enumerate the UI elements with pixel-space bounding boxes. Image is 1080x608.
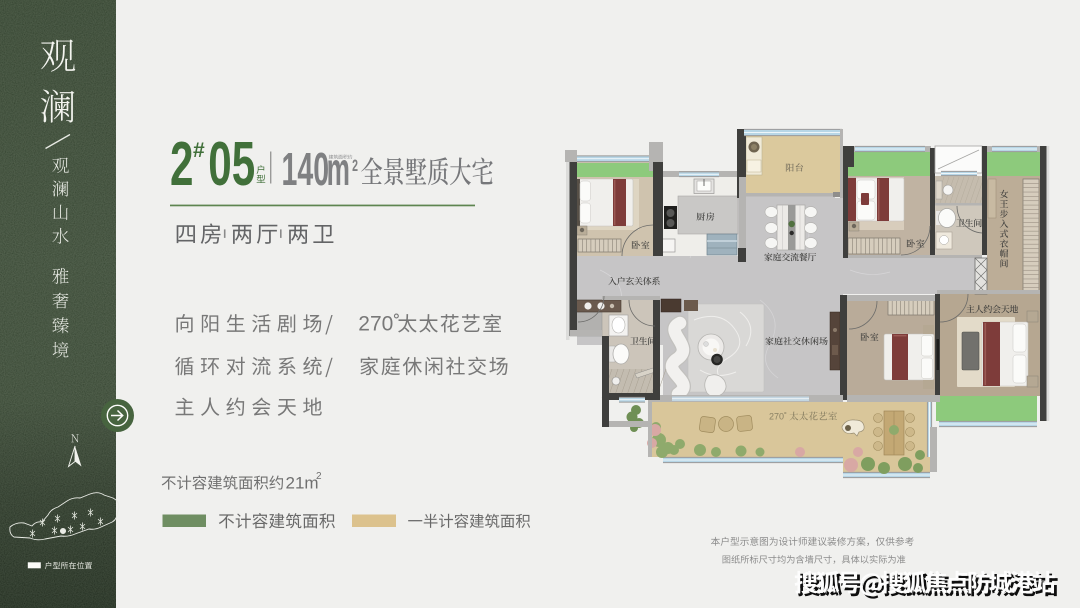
- svg-text:#: #: [193, 139, 205, 162]
- svg-text:m: m: [327, 143, 350, 195]
- svg-text:2: 2: [352, 155, 358, 174]
- svg-text:270˚: 270˚: [769, 412, 787, 422]
- svg-text:140: 140: [281, 144, 329, 196]
- svg-text:21m: 21m: [286, 474, 319, 493]
- svg-text:270˚: 270˚: [358, 312, 400, 335]
- svg-text:2: 2: [316, 471, 322, 482]
- svg-text:05: 05: [208, 130, 255, 199]
- svg-text:2: 2: [170, 130, 193, 199]
